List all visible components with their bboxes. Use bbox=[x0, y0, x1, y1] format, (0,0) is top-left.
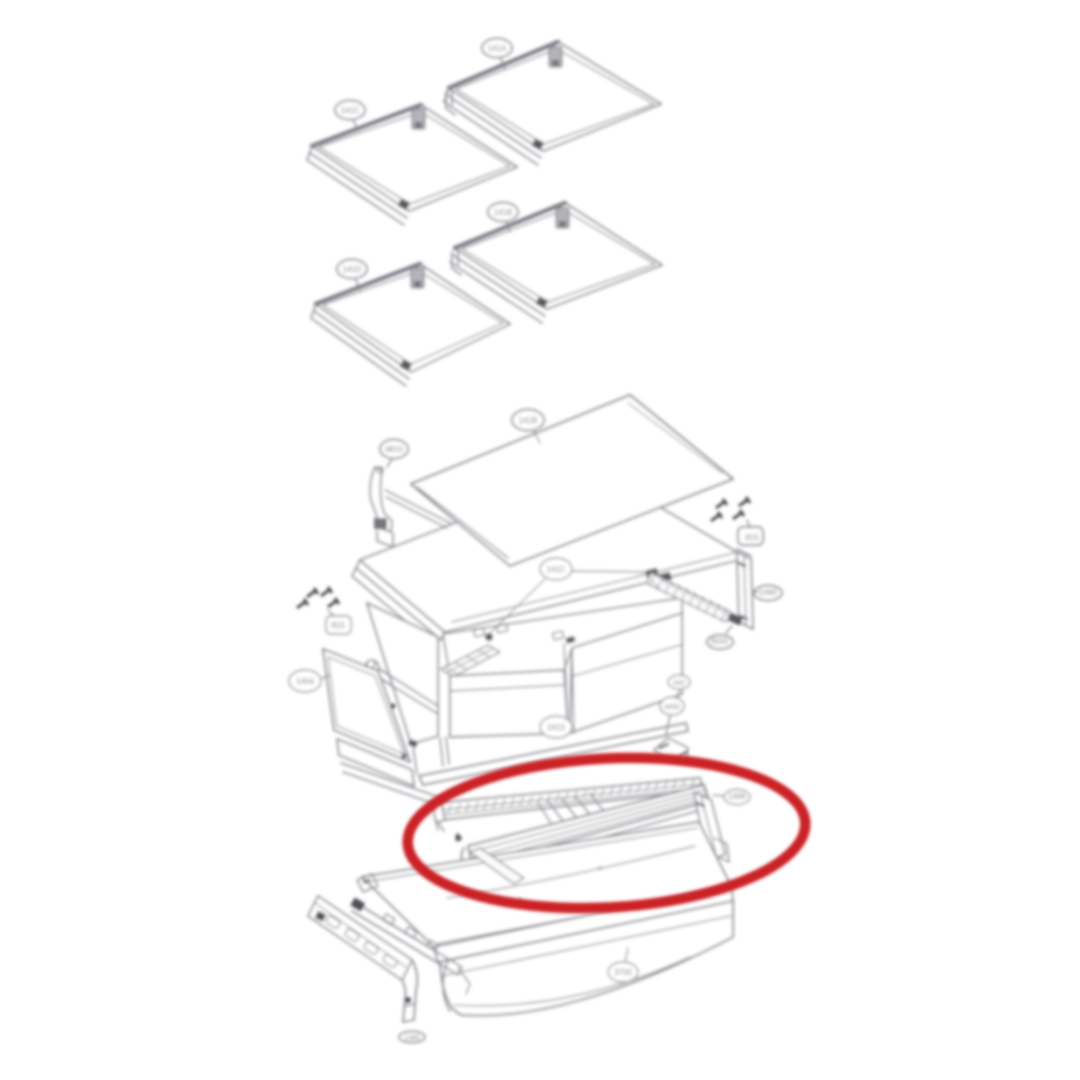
svg-text:3700: 3700 bbox=[614, 968, 632, 977]
svg-text:141B: 141B bbox=[494, 208, 513, 217]
svg-text:141D: 141D bbox=[342, 265, 361, 274]
svg-text:4810: 4810 bbox=[385, 445, 403, 454]
svg-text:141C: 141C bbox=[340, 106, 359, 115]
svg-text:141B: 141B bbox=[519, 416, 538, 425]
svg-text:1410: 1410 bbox=[547, 723, 565, 732]
svg-text:141A: 141A bbox=[488, 44, 507, 53]
svg-text:141C: 141C bbox=[546, 565, 565, 574]
svg-text:4400: 4400 bbox=[664, 704, 680, 711]
svg-text:1454: 1454 bbox=[296, 677, 314, 686]
svg-text:815: 815 bbox=[331, 621, 345, 630]
svg-text:1490: 1490 bbox=[759, 588, 777, 597]
svg-text:1496: 1496 bbox=[728, 792, 746, 801]
svg-text:1480: 1480 bbox=[404, 1035, 420, 1042]
svg-text:3550: 3550 bbox=[710, 637, 728, 646]
svg-text:040: 040 bbox=[673, 680, 685, 687]
svg-text:815: 815 bbox=[745, 533, 759, 542]
